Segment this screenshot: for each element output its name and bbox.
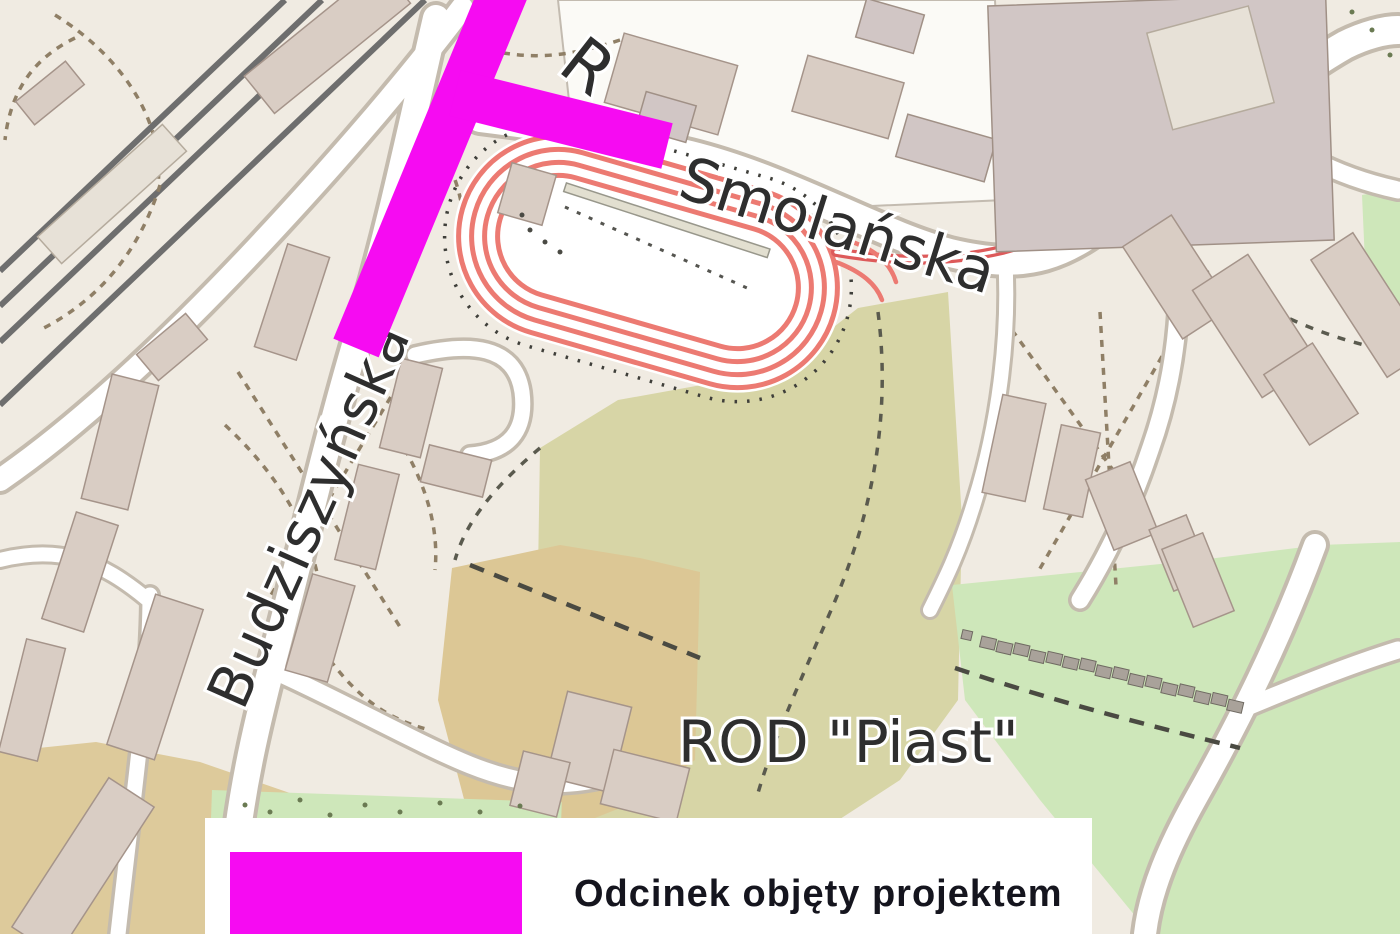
legend: Odcinek objęty projektem bbox=[205, 818, 1092, 934]
map-canvas[interactable]: R Smolańska Budziszyńska ROD "Piast" Odc… bbox=[0, 0, 1400, 934]
legend-swatch-magenta bbox=[230, 852, 522, 934]
area-label-rod-piast: ROD "Piast" bbox=[678, 708, 1019, 776]
legend-label: Odcinek objęty projektem bbox=[574, 873, 1063, 915]
map-screenshot: R Smolańska Budziszyńska ROD "Piast" Odc… bbox=[0, 0, 1400, 934]
